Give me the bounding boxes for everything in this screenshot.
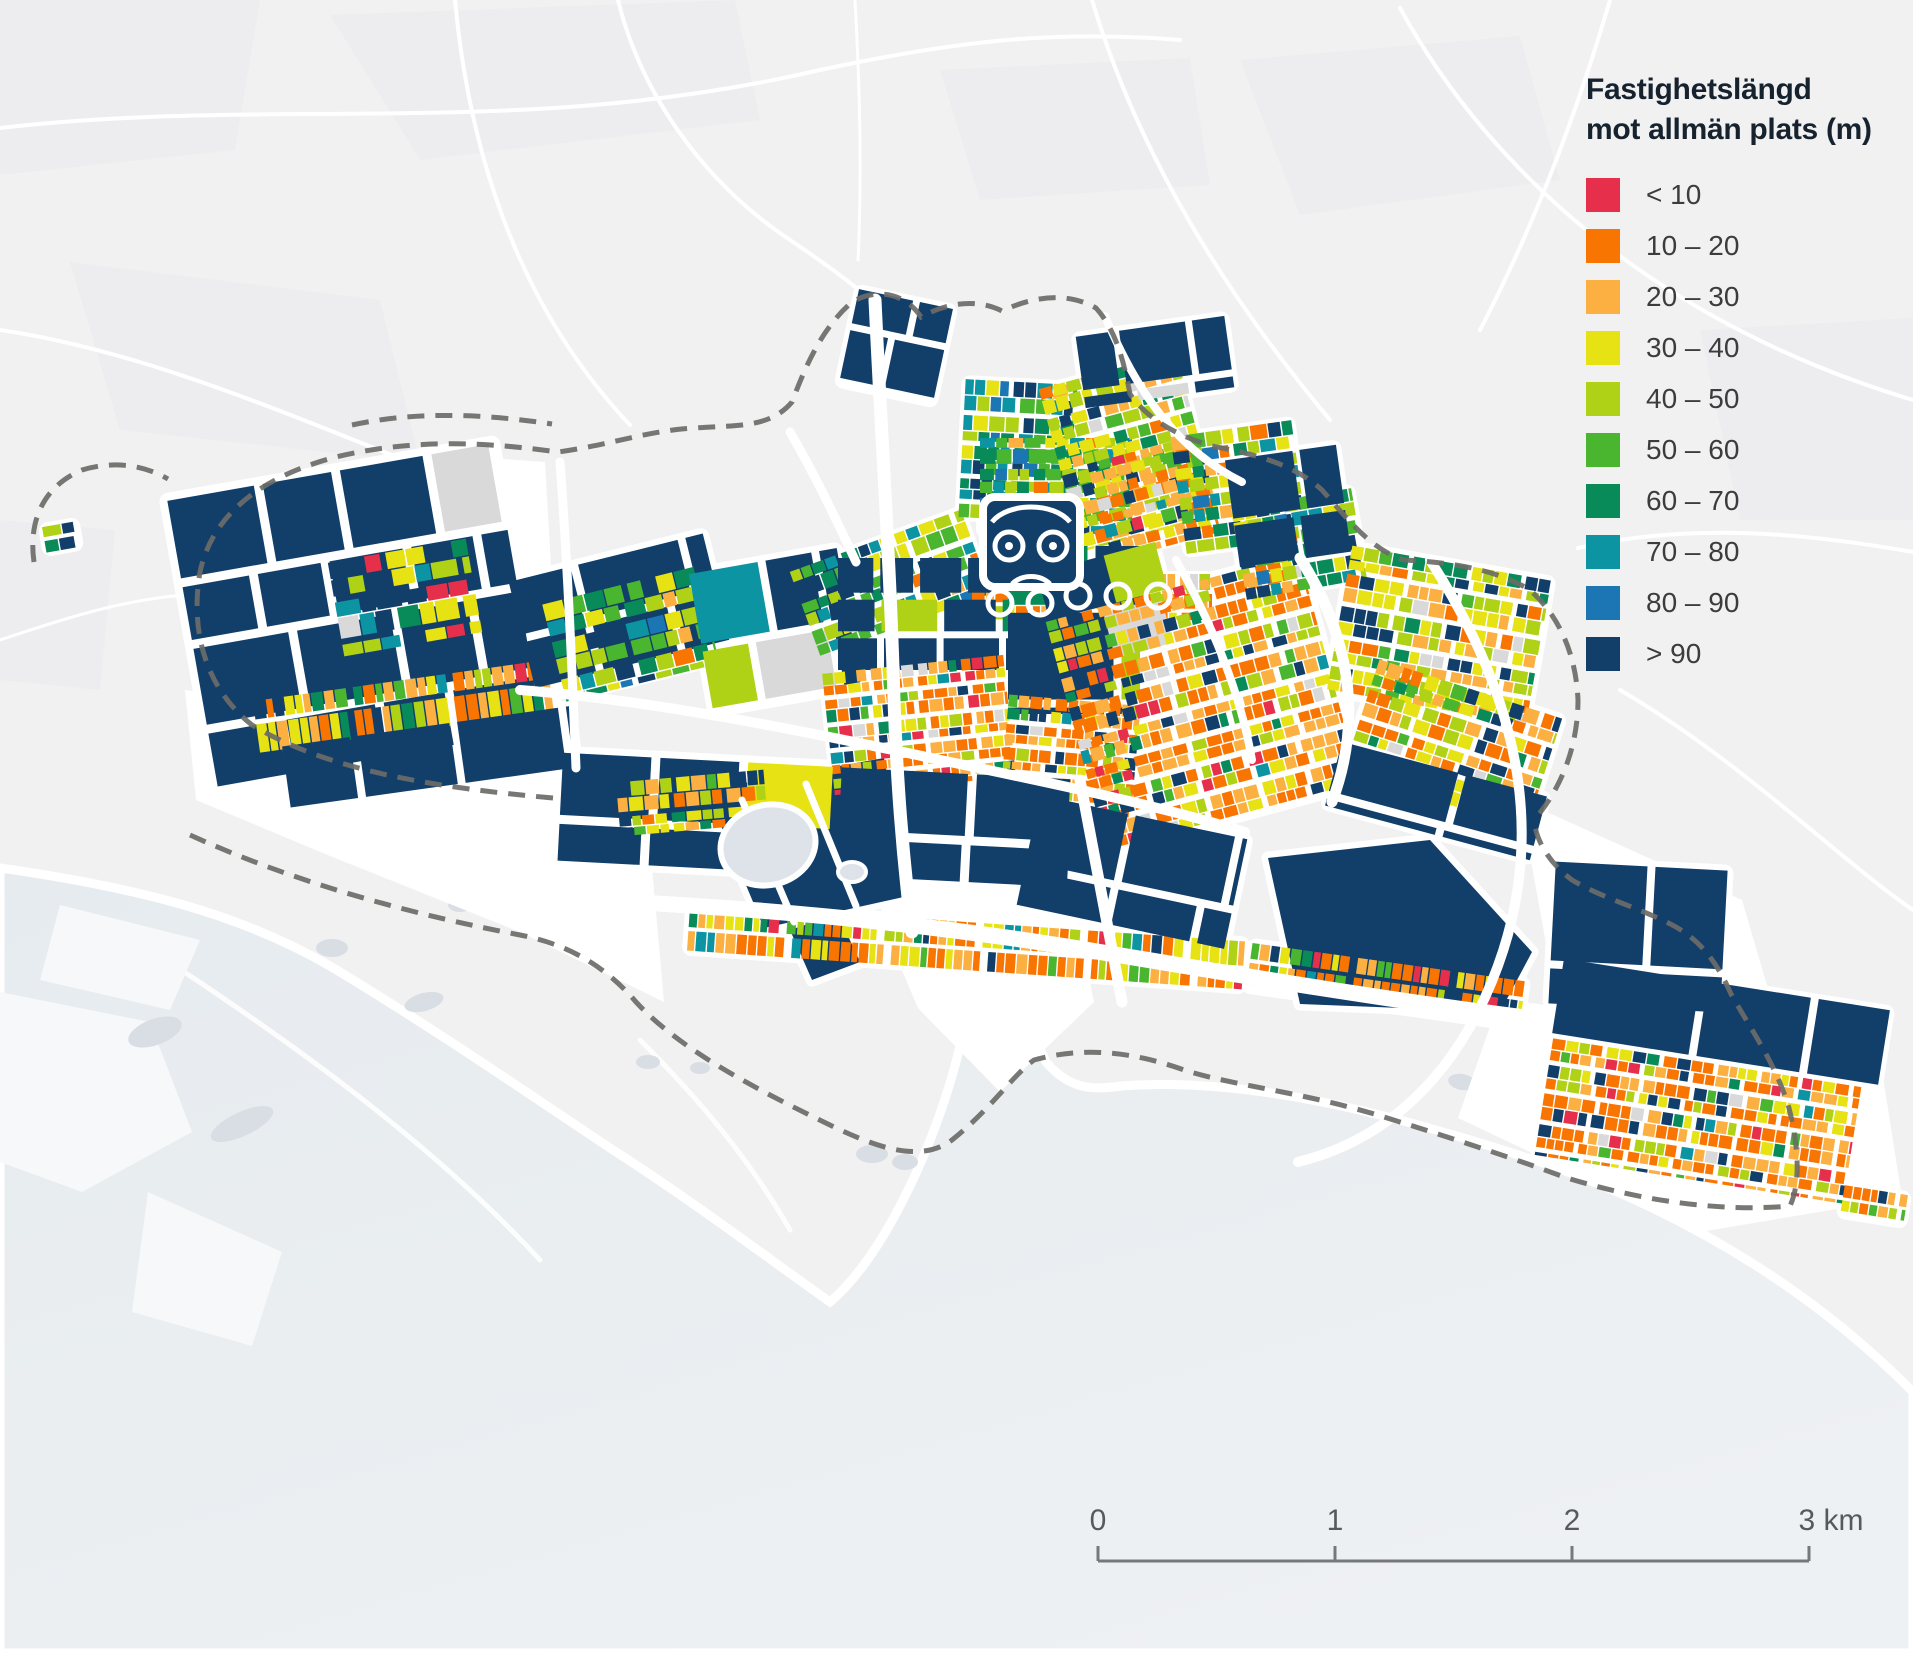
legend-item: 60 – 70 bbox=[1586, 484, 1906, 518]
legend-item-label: 30 – 40 bbox=[1646, 331, 1739, 365]
legend-swatch bbox=[1586, 178, 1620, 212]
scale-label: 1 bbox=[1327, 1504, 1344, 1537]
legend-item-label: < 10 bbox=[1646, 178, 1701, 212]
legend-item: 50 – 60 bbox=[1586, 433, 1906, 467]
legend-title-line1: Fastighetslängd bbox=[1586, 70, 1906, 110]
legend-swatch bbox=[1586, 637, 1620, 671]
map-page: 0123 km Fastighetslängd mot allmän plats… bbox=[0, 0, 1913, 1653]
legend-item-label: 50 – 60 bbox=[1646, 433, 1739, 467]
legend-item: 20 – 30 bbox=[1586, 280, 1906, 314]
legend-item-label: 20 – 30 bbox=[1646, 280, 1739, 314]
island bbox=[636, 1055, 660, 1069]
owl-park-block bbox=[983, 497, 1080, 587]
island bbox=[316, 939, 348, 957]
legend-swatch bbox=[1586, 229, 1620, 263]
legend-item: < 10 bbox=[1586, 178, 1906, 212]
legend-item-label: 60 – 70 bbox=[1646, 484, 1739, 518]
legend-item: 10 – 20 bbox=[1586, 229, 1906, 263]
legend-title: Fastighetslängd mot allmän plats (m) bbox=[1586, 70, 1906, 150]
legend-item-label: > 90 bbox=[1646, 637, 1701, 671]
island bbox=[690, 1062, 710, 1074]
legend-item-label: 70 – 80 bbox=[1646, 535, 1739, 569]
legend-swatch bbox=[1586, 586, 1620, 620]
legend: Fastighetslängd mot allmän plats (m) < 1… bbox=[1586, 70, 1906, 688]
legend-item: 40 – 50 bbox=[1586, 382, 1906, 416]
scale-label: 0 bbox=[1090, 1504, 1107, 1537]
legend-swatch bbox=[1586, 484, 1620, 518]
background-field bbox=[940, 58, 1210, 200]
legend-item: > 90 bbox=[1586, 637, 1906, 671]
legend-title-line2: mot allmän plats (m) bbox=[1586, 110, 1906, 150]
legend-items: < 1010 – 2020 – 3030 – 4040 – 5050 – 606… bbox=[1586, 178, 1906, 671]
legend-item: 70 – 80 bbox=[1586, 535, 1906, 569]
background-field bbox=[0, 0, 260, 175]
legend-swatch bbox=[1586, 331, 1620, 365]
legend-item: 30 – 40 bbox=[1586, 331, 1906, 365]
legend-item: 80 – 90 bbox=[1586, 586, 1906, 620]
legend-swatch bbox=[1586, 535, 1620, 569]
island bbox=[892, 1154, 918, 1170]
legend-swatch bbox=[1586, 382, 1620, 416]
legend-swatch bbox=[1586, 280, 1620, 314]
legend-item-label: 10 – 20 bbox=[1646, 229, 1739, 263]
scale-label: 2 bbox=[1564, 1504, 1581, 1537]
legend-item-label: 80 – 90 bbox=[1646, 586, 1739, 620]
scale-label: 3 km bbox=[1798, 1504, 1863, 1537]
pond bbox=[838, 862, 866, 882]
legend-swatch bbox=[1586, 433, 1620, 467]
legend-item-label: 40 – 50 bbox=[1646, 382, 1739, 416]
